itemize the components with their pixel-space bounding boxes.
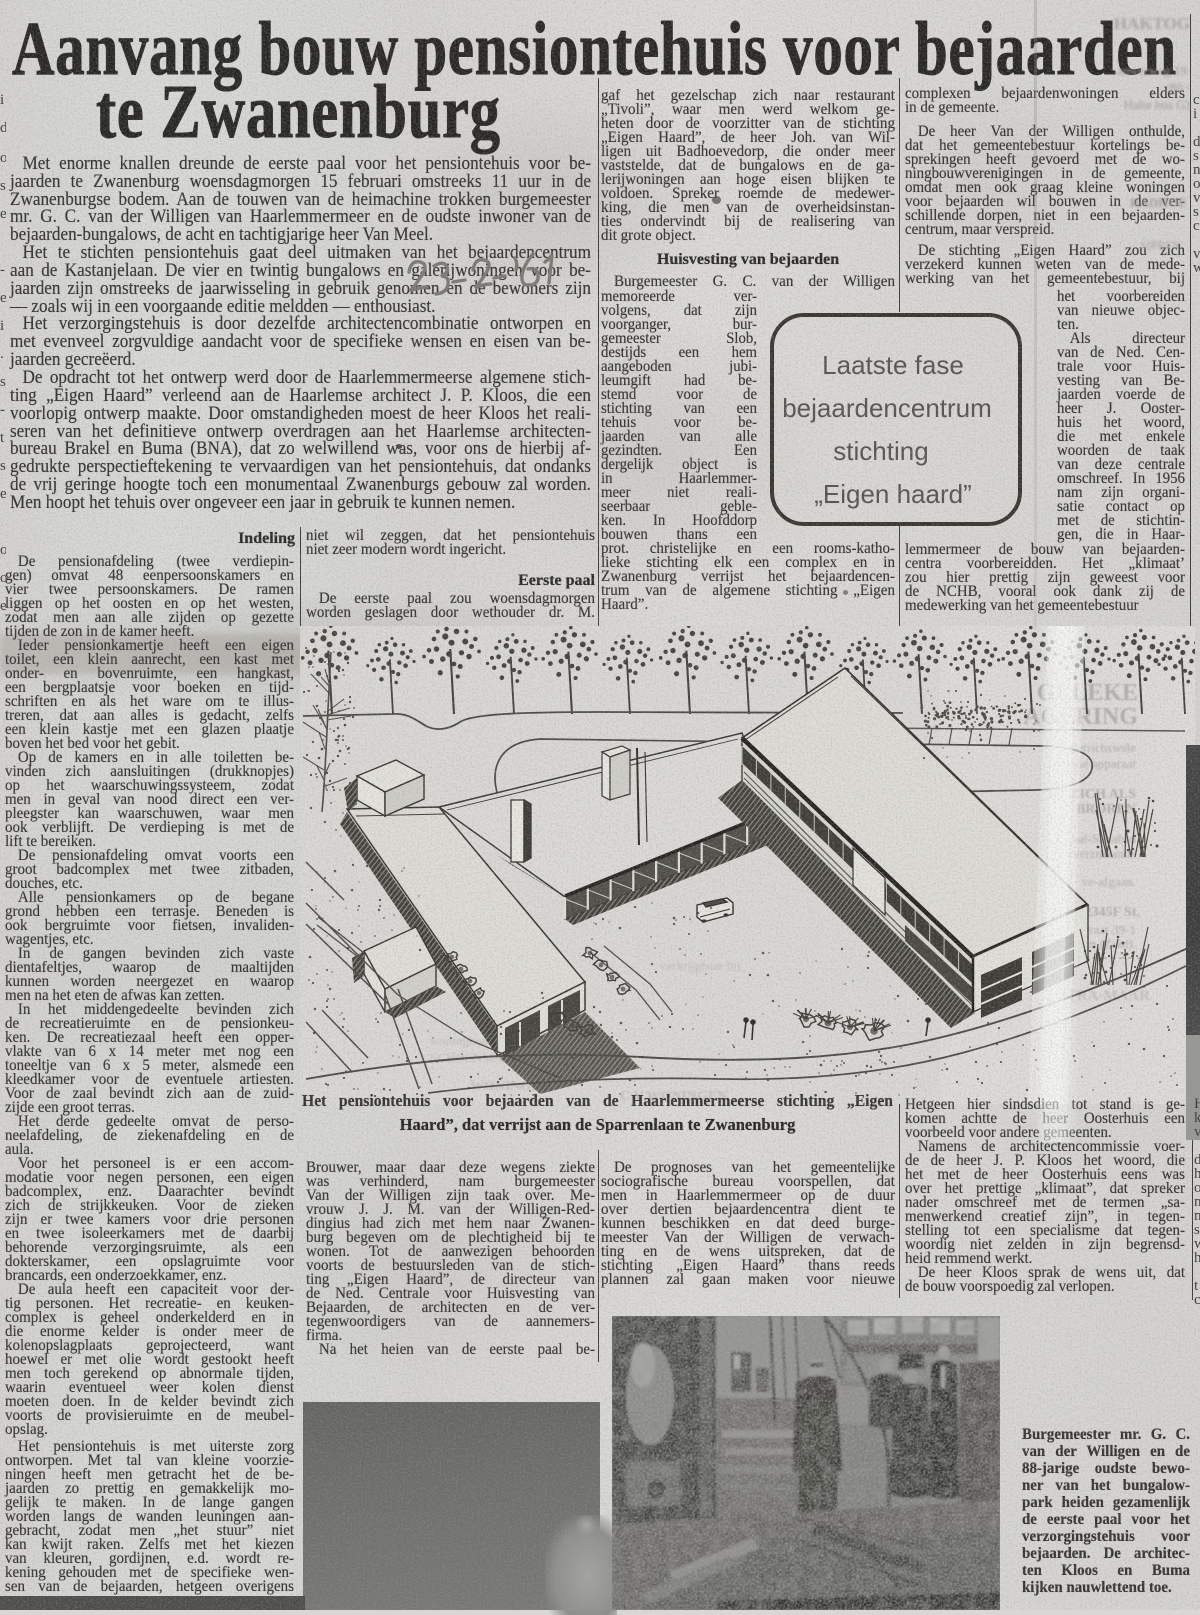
svg-text:verkrijgbaar bij: verkrijgbaar bij (660, 958, 741, 973)
svg-text:BROREN: BROREN (1076, 802, 1136, 817)
svg-text:ve-afgaan.: ve-afgaan. (1082, 874, 1137, 889)
